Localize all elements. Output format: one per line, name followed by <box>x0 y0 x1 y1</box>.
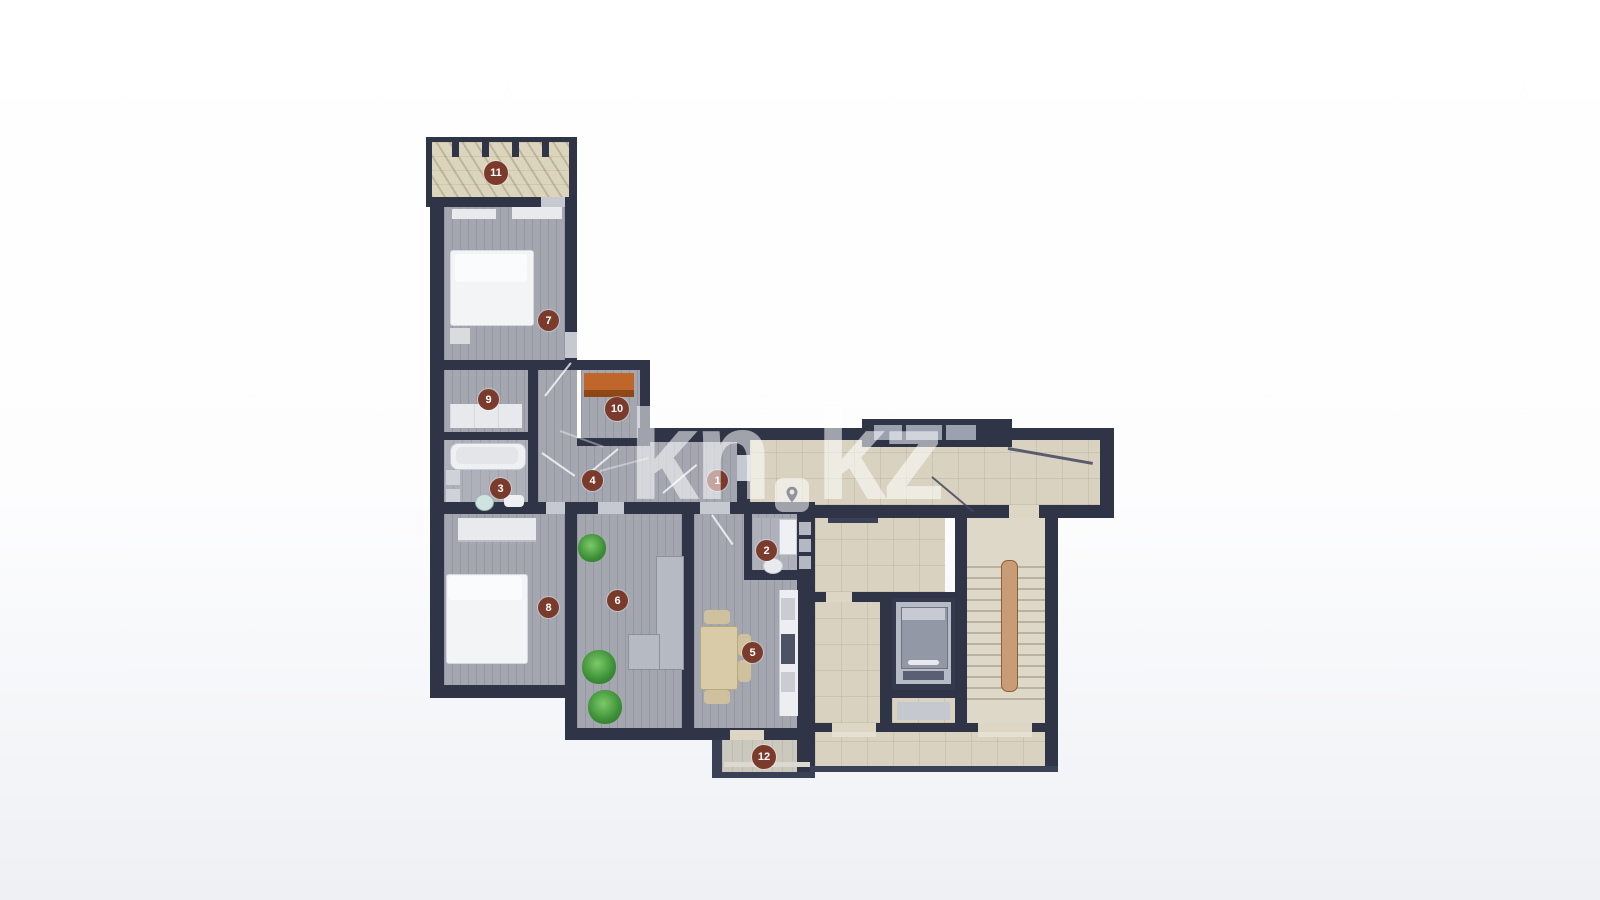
balcony-window-mullion <box>482 141 489 157</box>
plant <box>588 690 622 724</box>
door-opening <box>1009 505 1039 518</box>
balcony-window-mullion <box>452 141 459 157</box>
chair <box>704 690 730 704</box>
wall <box>565 728 815 740</box>
wall <box>430 502 444 698</box>
nightstand <box>450 328 470 344</box>
wall <box>430 360 444 502</box>
watermark-text-left: kn <box>628 392 767 520</box>
room-marker-3: 3 <box>490 478 511 499</box>
wall <box>426 137 577 142</box>
wall-niche <box>799 539 811 552</box>
door-opening <box>730 730 764 740</box>
wall <box>430 197 444 372</box>
wall <box>430 432 528 440</box>
door-opening <box>565 332 577 358</box>
kitchen-sink <box>781 598 795 620</box>
elevator-cabin-top <box>902 608 945 620</box>
wall <box>569 137 577 203</box>
wall <box>880 598 892 723</box>
vestibule-floor <box>815 518 945 592</box>
room-marker-12: 12 <box>752 745 776 769</box>
bathroom-cabinet <box>446 489 460 502</box>
toilet <box>504 495 524 507</box>
room-marker-10: 10 <box>605 397 629 421</box>
elevator-lobby-panel <box>897 702 950 720</box>
elevator-door <box>903 671 944 680</box>
kitchen-appliance <box>781 672 795 692</box>
entry-door-panel <box>946 425 976 440</box>
room-marker-2: 2 <box>756 540 777 561</box>
door-opening <box>978 723 1032 732</box>
chair <box>738 660 751 682</box>
staircase-handrail <box>1001 560 1018 692</box>
wall <box>430 685 577 698</box>
sofa-seat <box>628 634 660 670</box>
wall-niche <box>799 556 811 569</box>
door-opening <box>826 592 852 602</box>
wall <box>712 740 722 774</box>
bathtub-basin <box>456 447 518 464</box>
watermark: kn kz <box>628 392 941 520</box>
room-marker-8: 8 <box>538 597 559 618</box>
room-marker-9: 9 <box>478 389 499 410</box>
room-marker-4: 4 <box>582 470 603 491</box>
room-marker-11: 11 <box>484 161 508 185</box>
room-marker-6: 6 <box>607 590 628 611</box>
wardrobe-base <box>584 390 634 397</box>
storage-room-floor <box>815 602 880 723</box>
window-sill <box>512 207 562 219</box>
sink <box>475 494 494 511</box>
balcony-window-mullion <box>512 141 519 157</box>
window-sill <box>452 209 496 219</box>
plant <box>578 534 606 562</box>
desk <box>458 518 536 542</box>
lower-corridor-floor <box>815 732 1045 768</box>
door-opening <box>598 502 624 514</box>
wall <box>810 766 1058 772</box>
chair <box>704 610 730 624</box>
wall <box>712 772 815 778</box>
bed-pillows <box>455 254 527 282</box>
door-opening <box>541 197 567 207</box>
wall <box>426 137 432 203</box>
washing-machine <box>779 519 797 555</box>
balcony-window-mullion <box>542 141 549 157</box>
floor-plan: 1 2 3 4 5 6 7 8 9 10 11 12 kn kz <box>0 0 1600 900</box>
sofa-back <box>656 556 684 670</box>
wall-niche <box>799 522 811 535</box>
wall <box>1045 505 1058 772</box>
wall <box>528 362 538 502</box>
location-pin-icon <box>775 478 809 512</box>
room-marker-7: 7 <box>538 310 559 331</box>
bed-pillows <box>448 576 522 600</box>
plant <box>582 650 616 684</box>
elevator-handrail <box>908 660 939 665</box>
wall <box>430 360 577 370</box>
wall <box>892 690 955 698</box>
dining-table <box>700 626 738 690</box>
door-sill <box>978 732 1032 737</box>
watermark-text-right: kz <box>815 392 940 520</box>
wall <box>565 502 577 698</box>
door-opening <box>832 723 876 732</box>
door-sill <box>832 732 876 737</box>
stove <box>781 634 795 664</box>
wall <box>955 518 967 723</box>
room-marker-5: 5 <box>742 642 763 663</box>
bathroom-cabinet <box>446 470 460 485</box>
